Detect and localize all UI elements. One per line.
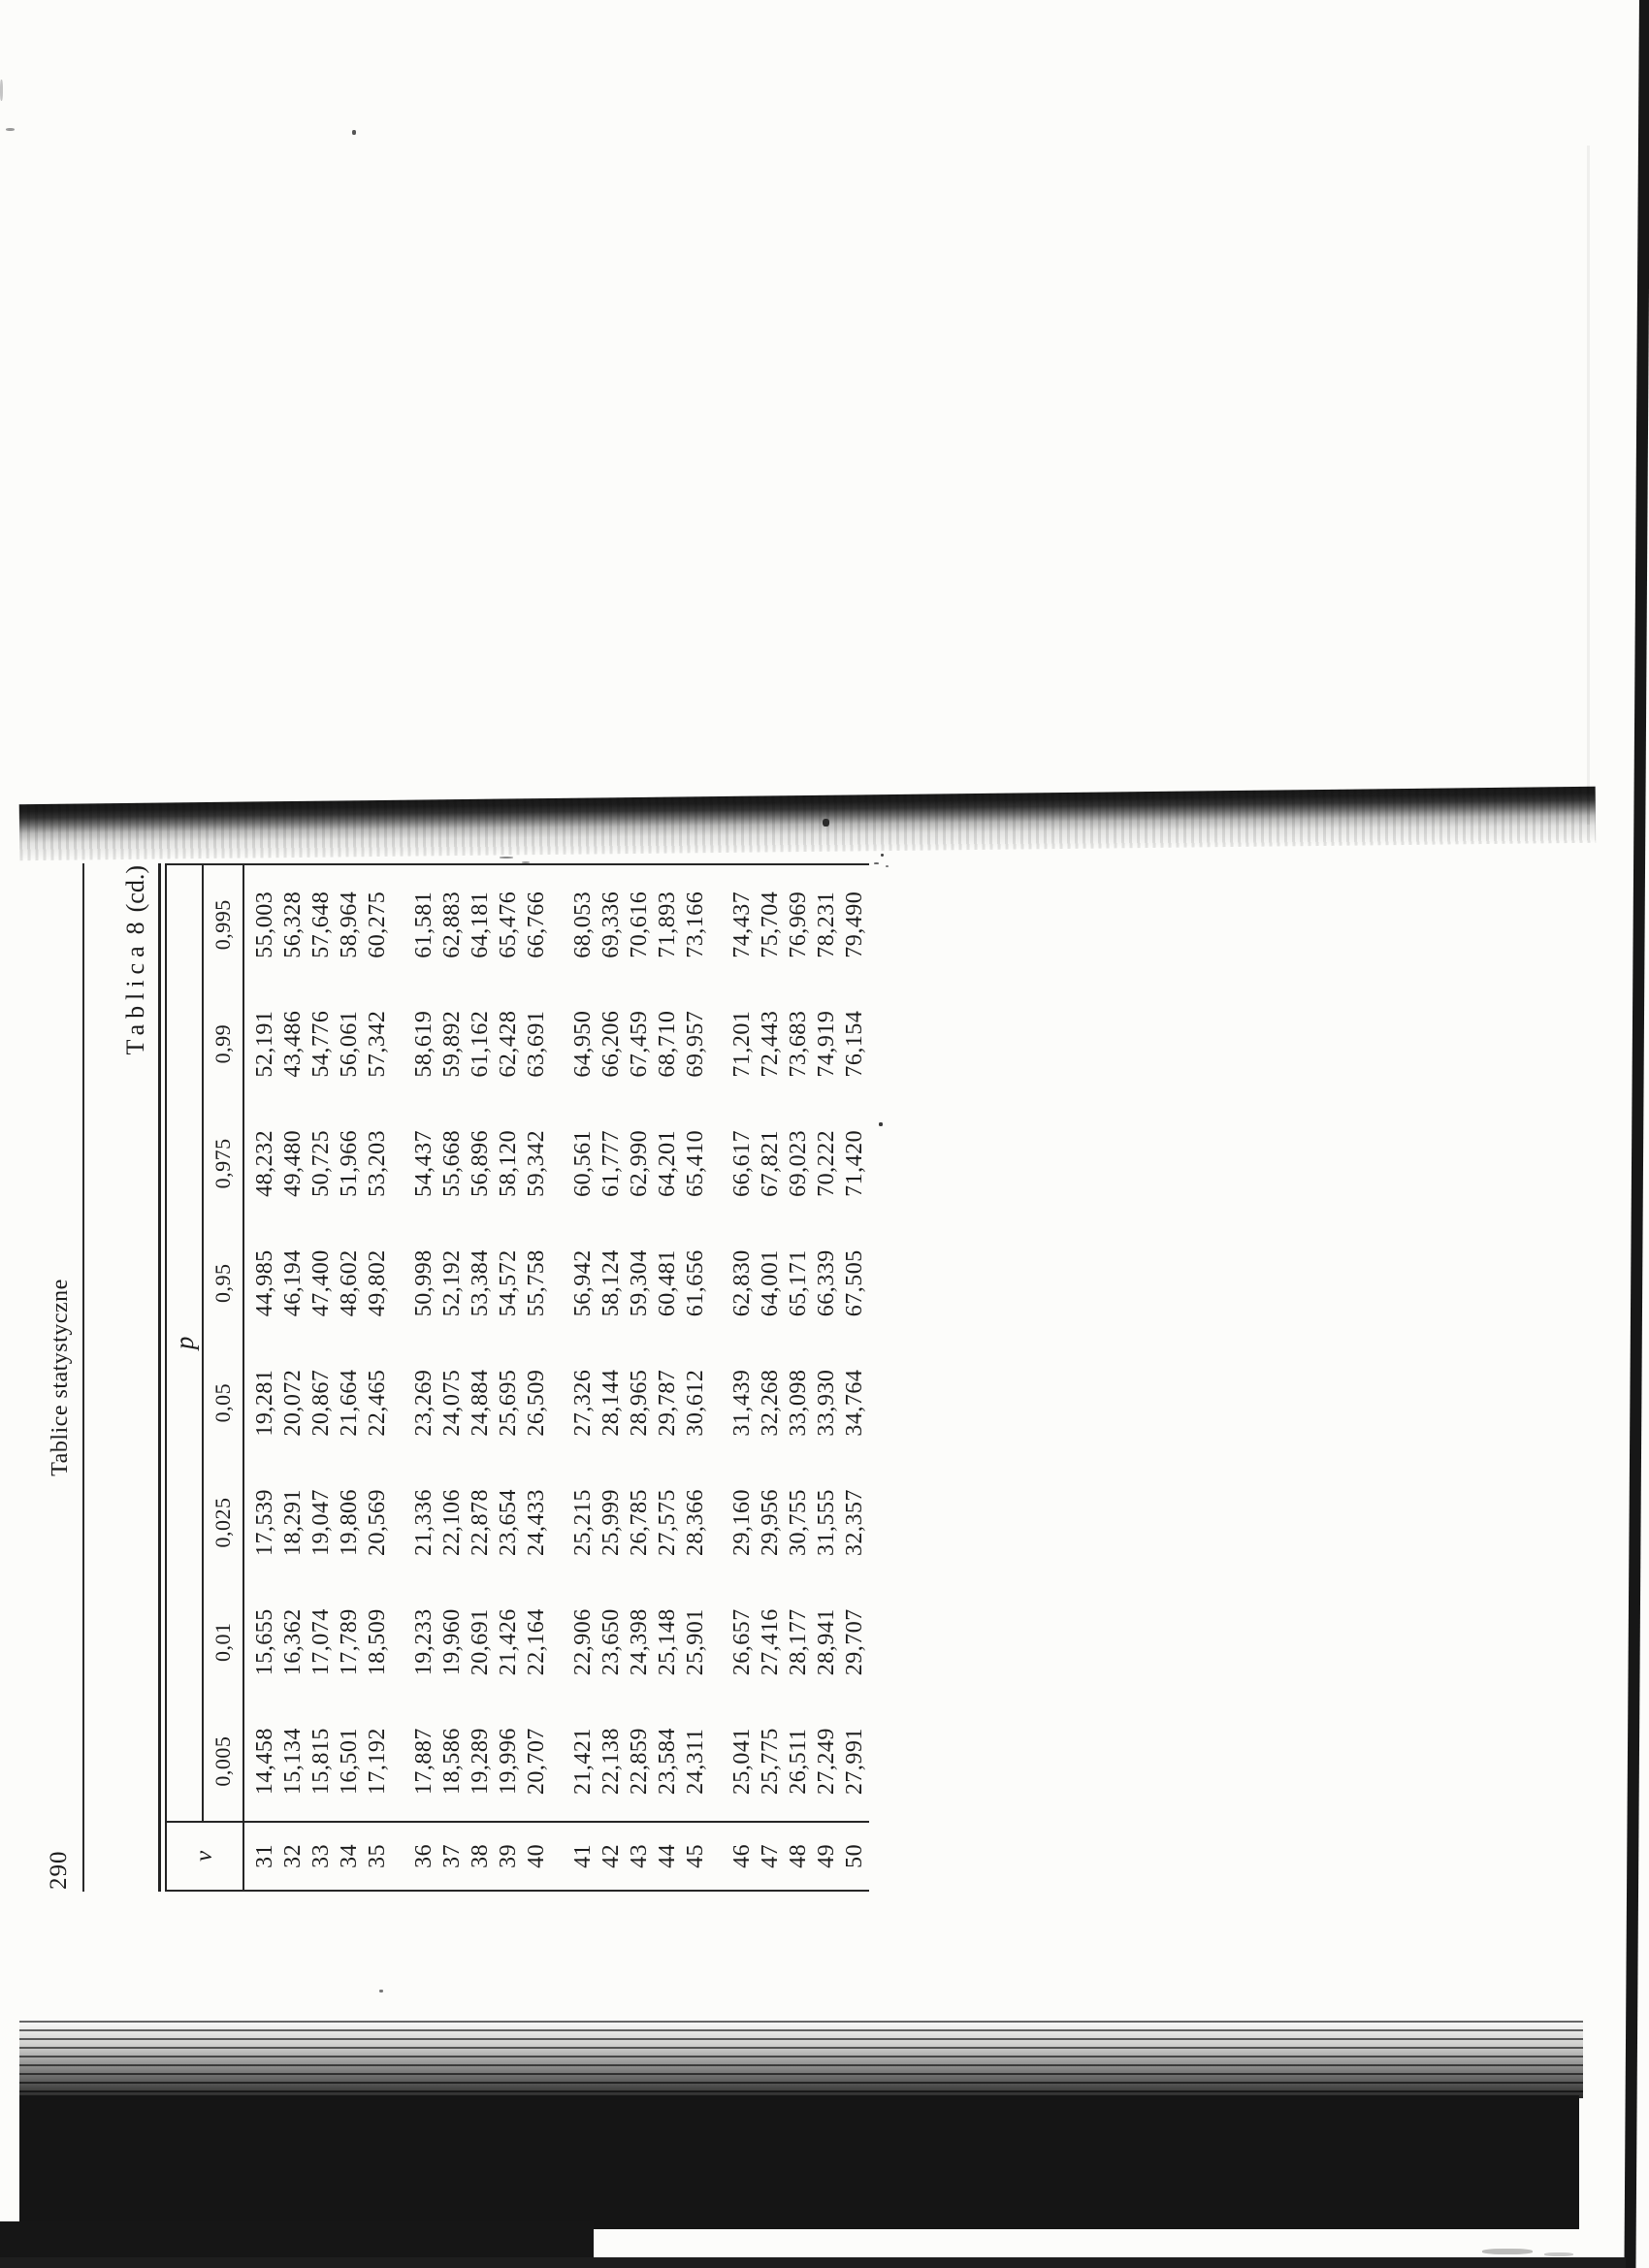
- p-value-header: 0,025: [203, 1463, 243, 1582]
- table-row: 3617,88719,23321,33623,26950,99854,43758…: [392, 864, 438, 1891]
- value-cell: 50,725: [307, 1104, 336, 1223]
- value-cell: 62,428: [495, 984, 523, 1103]
- value-cell: 21,336: [392, 1463, 438, 1582]
- value-cell: 22,906: [551, 1582, 598, 1701]
- value-cell: 25,041: [710, 1701, 757, 1821]
- value-cell: 52,192: [438, 1223, 467, 1343]
- value-cell: 61,581: [392, 864, 438, 984]
- value-cell: 51,966: [336, 1104, 364, 1223]
- table-row: 4826,51128,17730,75533,09865,17169,02373…: [785, 864, 813, 1891]
- scan-speck: [823, 819, 829, 826]
- value-cell: 20,691: [467, 1582, 495, 1701]
- scan-speck: [1482, 2249, 1533, 2254]
- value-cell: 18,291: [279, 1463, 307, 1582]
- scan-bottom-streaks: [19, 2021, 1583, 2098]
- value-cell: 21,664: [336, 1343, 364, 1462]
- value-cell: 29,956: [757, 1463, 785, 1582]
- nu-cell: 44: [654, 1822, 682, 1891]
- value-cell: 17,539: [243, 1463, 279, 1582]
- value-cell: 24,884: [467, 1343, 495, 1462]
- value-cell: 30,755: [785, 1463, 813, 1582]
- value-cell: 54,572: [495, 1223, 523, 1343]
- value-cell: 22,859: [626, 1701, 654, 1821]
- value-cell: 27,416: [757, 1582, 785, 1701]
- value-cell: 30,612: [682, 1343, 710, 1462]
- rotated-content: 290 Tablice statystyczne Tablica8(cd.) ν…: [39, 863, 861, 1892]
- nu-cell: 40: [523, 1822, 551, 1891]
- value-cell: 25,215: [551, 1463, 598, 1582]
- nu-cell: 39: [495, 1822, 523, 1891]
- value-cell: 76,969: [785, 864, 813, 984]
- value-cell: 66,617: [710, 1104, 757, 1223]
- value-cell: 27,991: [841, 1701, 869, 1821]
- value-cell: 64,950: [551, 984, 598, 1103]
- value-cell: 15,655: [243, 1582, 279, 1701]
- value-cell: 65,171: [785, 1223, 813, 1343]
- value-cell: 28,941: [813, 1582, 841, 1701]
- value-cell: 25,999: [598, 1463, 626, 1582]
- value-cell: 76,154: [841, 984, 869, 1103]
- nu-cell: 32: [279, 1822, 307, 1891]
- value-cell: 18,509: [364, 1582, 392, 1701]
- value-cell: 62,883: [438, 864, 467, 984]
- value-cell: 27,575: [654, 1463, 682, 1582]
- p-value-header: 0,005: [203, 1701, 243, 1821]
- value-cell: 56,061: [336, 984, 364, 1103]
- value-cell: 73,166: [682, 864, 710, 984]
- value-cell: 56,896: [467, 1104, 495, 1223]
- value-cell: 64,201: [654, 1104, 682, 1223]
- table-row: 3517,19218,50920,56922,46549,80253,20357…: [364, 864, 392, 1891]
- table-row: 4121,42122,90625,21527,32656,94260,56164…: [551, 864, 598, 1891]
- value-cell: 32,268: [757, 1343, 785, 1462]
- value-cell: 33,930: [813, 1343, 841, 1462]
- value-cell: 25,695: [495, 1343, 523, 1462]
- scan-crease-line: [1587, 146, 1590, 825]
- value-cell: 67,459: [626, 984, 654, 1103]
- value-cell: 64,181: [467, 864, 495, 984]
- value-cell: 21,421: [551, 1701, 598, 1821]
- value-cell: 23,650: [598, 1582, 626, 1701]
- value-cell: 49,802: [364, 1223, 392, 1343]
- table-row: 3919,99621,42623,65425,69554,57258,12062…: [495, 864, 523, 1891]
- value-cell: 22,164: [523, 1582, 551, 1701]
- p-value-header: 0,975: [203, 1104, 243, 1223]
- value-cell: 66,339: [813, 1223, 841, 1343]
- scan-bottom-strip: [0, 2257, 1626, 2268]
- value-cell: 50,998: [392, 1223, 438, 1343]
- value-cell: 58,964: [336, 864, 364, 984]
- value-cell: 49,480: [279, 1104, 307, 1223]
- value-cell: 48,232: [243, 1104, 279, 1223]
- header-p: p: [167, 864, 203, 1822]
- value-cell: 61,777: [598, 1104, 626, 1223]
- value-cell: 24,433: [523, 1463, 551, 1582]
- value-cell: 19,289: [467, 1701, 495, 1821]
- value-cell: 66,766: [523, 864, 551, 984]
- p-value-header: 0,995: [203, 864, 243, 984]
- value-cell: 57,648: [307, 864, 336, 984]
- table-row: 4222,13823,65025,99928,14458,12461,77766…: [598, 864, 626, 1891]
- value-cell: 25,775: [757, 1701, 785, 1821]
- scan-speck: [500, 857, 513, 859]
- value-cell: 16,501: [336, 1701, 364, 1821]
- value-cell: 27,326: [551, 1343, 598, 1462]
- value-cell: 53,384: [467, 1223, 495, 1343]
- value-cell: 29,160: [710, 1463, 757, 1582]
- nu-cell: 43: [626, 1822, 654, 1891]
- value-cell: 54,437: [392, 1104, 438, 1223]
- value-cell: 52,191: [243, 984, 279, 1103]
- value-cell: 65,410: [682, 1104, 710, 1223]
- nu-cell: 48: [785, 1822, 813, 1891]
- value-cell: 48,602: [336, 1223, 364, 1343]
- scan-speck: [379, 1990, 383, 1993]
- value-cell: 69,023: [785, 1104, 813, 1223]
- value-cell: 22,465: [364, 1343, 392, 1462]
- table-row: 3718,58619,96022,10624,07552,19255,66859…: [438, 864, 467, 1891]
- value-cell: 71,893: [654, 864, 682, 984]
- table-top-rule-outer: [158, 863, 161, 1892]
- value-cell: 68,053: [551, 864, 598, 984]
- value-cell: 69,957: [682, 984, 710, 1103]
- value-cell: 59,892: [438, 984, 467, 1103]
- scan-speck: [0, 80, 3, 101]
- scan-binding-shadow-band: [19, 787, 1597, 860]
- value-cell: 17,887: [392, 1701, 438, 1821]
- value-cell: 68,710: [654, 984, 682, 1103]
- p-value-header: 0,05: [203, 1343, 243, 1462]
- value-cell: 31,439: [710, 1343, 757, 1462]
- table-header: ν p 0,0050,010,0250,050,950,9750,990,995: [167, 864, 243, 1891]
- table-row: 4423,58425,14827,57529,78760,48164,20168…: [654, 864, 682, 1891]
- value-cell: 24,311: [682, 1701, 710, 1821]
- value-cell: 32,357: [841, 1463, 869, 1582]
- value-cell: 15,815: [307, 1701, 336, 1821]
- value-cell: 26,511: [785, 1701, 813, 1821]
- table-title-number: 8: [121, 912, 149, 940]
- value-cell: 19,996: [495, 1701, 523, 1821]
- value-cell: 28,177: [785, 1582, 813, 1701]
- table-row: 3315,81517,07419,04720,86747,40050,72554…: [307, 864, 336, 1891]
- value-cell: 56,328: [279, 864, 307, 984]
- scan-speck: [874, 862, 879, 864]
- value-cell: 57,342: [364, 984, 392, 1103]
- value-cell: 67,505: [841, 1223, 869, 1343]
- nu-cell: 46: [710, 1822, 757, 1891]
- value-cell: 23,269: [392, 1343, 438, 1462]
- running-head: Tablice statystyczne: [48, 863, 74, 1892]
- value-cell: 16,362: [279, 1582, 307, 1701]
- table-row: 3416,50117,78919,80621,66448,60251,96656…: [336, 864, 364, 1891]
- value-cell: 46,194: [279, 1223, 307, 1343]
- value-cell: 62,990: [626, 1104, 654, 1223]
- value-cell: 44,985: [243, 1223, 279, 1343]
- table-title: Tablica8(cd.): [121, 863, 156, 1892]
- value-cell: 26,509: [523, 1343, 551, 1462]
- value-cell: 15,134: [279, 1701, 307, 1821]
- scan-speck: [886, 865, 889, 867]
- p-value-header: 0,95: [203, 1223, 243, 1343]
- value-cell: 27,249: [813, 1701, 841, 1821]
- chi-square-table: ν p 0,0050,010,0250,050,950,9750,990,995…: [158, 863, 869, 1892]
- value-cell: 25,148: [654, 1582, 682, 1701]
- value-cell: 62,830: [710, 1223, 757, 1343]
- table-row: 4725,77527,41629,95632,26864,00167,82172…: [757, 864, 785, 1891]
- value-cell: 43,486: [279, 984, 307, 1103]
- value-cell: 70,222: [813, 1104, 841, 1223]
- nu-cell: 38: [467, 1822, 495, 1891]
- value-cell: 19,047: [307, 1463, 336, 1582]
- value-cell: 71,420: [841, 1104, 869, 1223]
- nu-cell: 33: [307, 1822, 336, 1891]
- nu-cell: 37: [438, 1822, 467, 1891]
- value-cell: 70,616: [626, 864, 654, 984]
- table-row: 4524,31125,90128,36630,61261,65665,41069…: [682, 864, 710, 1891]
- table-row: 4625,04126,65729,16031,43962,83066,61771…: [710, 864, 757, 1891]
- value-cell: 19,806: [336, 1463, 364, 1582]
- value-cell: 20,072: [279, 1343, 307, 1462]
- value-cell: 54,776: [307, 984, 336, 1103]
- table-grid: ν p 0,0050,010,0250,050,950,9750,990,995…: [167, 863, 869, 1892]
- value-cell: 63,691: [523, 984, 551, 1103]
- value-cell: 58,619: [392, 984, 438, 1103]
- value-cell: 55,758: [523, 1223, 551, 1343]
- nu-cell: 35: [364, 1822, 392, 1891]
- nu-cell: 41: [551, 1822, 598, 1891]
- value-cell: 66,206: [598, 984, 626, 1103]
- scan-speck: [879, 1122, 883, 1126]
- table-title-word: Tablica: [121, 940, 149, 1054]
- value-cell: 17,789: [336, 1582, 364, 1701]
- value-cell: 59,304: [626, 1223, 654, 1343]
- nu-cell: 31: [243, 1822, 279, 1891]
- value-cell: 74,437: [710, 864, 757, 984]
- p-value-header: 0,01: [203, 1582, 243, 1701]
- value-cell: 25,901: [682, 1582, 710, 1701]
- value-cell: 74,919: [813, 984, 841, 1103]
- value-cell: 33,098: [785, 1343, 813, 1462]
- value-cell: 64,001: [757, 1223, 785, 1343]
- p-value-header: 0,99: [203, 984, 243, 1103]
- value-cell: 69,336: [598, 864, 626, 984]
- value-cell: 53,203: [364, 1104, 392, 1223]
- value-cell: 20,707: [523, 1701, 551, 1821]
- value-cell: 28,965: [626, 1343, 654, 1462]
- value-cell: 55,003: [243, 864, 279, 984]
- value-cell: 34,764: [841, 1343, 869, 1462]
- nu-cell: 45: [682, 1822, 710, 1891]
- value-cell: 22,106: [438, 1463, 467, 1582]
- header-p-values-row: 0,0050,010,0250,050,950,9750,990,995: [203, 864, 243, 1891]
- value-cell: 60,275: [364, 864, 392, 984]
- value-cell: 24,398: [626, 1582, 654, 1701]
- value-cell: 19,233: [392, 1582, 438, 1701]
- value-cell: 31,555: [813, 1463, 841, 1582]
- value-cell: 67,821: [757, 1104, 785, 1223]
- scan-speck: [881, 854, 884, 857]
- table-row: 3114,45815,65517,53919,28144,98548,23252…: [243, 864, 279, 1891]
- value-cell: 23,584: [654, 1701, 682, 1821]
- value-cell: 55,668: [438, 1104, 467, 1223]
- value-cell: 60,481: [654, 1223, 682, 1343]
- value-cell: 19,281: [243, 1343, 279, 1462]
- value-cell: 28,366: [682, 1463, 710, 1582]
- table-row: 4020,70722,16424,43326,50955,75859,34263…: [523, 864, 551, 1891]
- table-row: 3819,28920,69122,87824,88453,38456,89661…: [467, 864, 495, 1891]
- value-cell: 18,586: [438, 1701, 467, 1821]
- value-cell: 29,787: [654, 1343, 682, 1462]
- table-row: 5027,99129,70732,35734,76467,50571,42076…: [841, 864, 869, 1891]
- value-cell: 72,443: [757, 984, 785, 1103]
- value-cell: 79,490: [841, 864, 869, 984]
- scan-speck: [352, 130, 356, 135]
- value-cell: 23,654: [495, 1463, 523, 1582]
- nu-cell: 36: [392, 1822, 438, 1891]
- value-cell: 17,074: [307, 1582, 336, 1701]
- value-cell: 58,124: [598, 1223, 626, 1343]
- nu-cell: 47: [757, 1822, 785, 1891]
- value-cell: 58,120: [495, 1104, 523, 1223]
- scanned-page: 290 Tablice statystyczne Tablica8(cd.) ν…: [0, 0, 1649, 2268]
- value-cell: 22,878: [467, 1463, 495, 1582]
- table-title-suffix: (cd.): [121, 865, 149, 912]
- table-row: 3215,13416,36218,29120,07246,19449,48043…: [279, 864, 307, 1891]
- nu-cell: 50: [841, 1822, 869, 1891]
- value-cell: 61,162: [467, 984, 495, 1103]
- nu-cell: 42: [598, 1822, 626, 1891]
- value-cell: 14,458: [243, 1701, 279, 1821]
- value-cell: 75,704: [757, 864, 785, 984]
- nu-cell: 34: [336, 1822, 364, 1891]
- scan-bottom-black-band: [19, 2095, 1579, 2229]
- scan-speck: [6, 128, 15, 131]
- scan-speck: [1544, 2252, 1573, 2256]
- scan-right-edge-bar: [1624, 0, 1649, 2268]
- value-cell: 61,656: [682, 1223, 710, 1343]
- value-cell: 29,707: [841, 1582, 869, 1701]
- value-cell: 73,683: [785, 984, 813, 1103]
- header-nu: ν: [167, 1822, 243, 1891]
- value-cell: 17,192: [364, 1701, 392, 1821]
- table-row: 4927,24928,94131,55533,93066,33970,22274…: [813, 864, 841, 1891]
- value-cell: 20,569: [364, 1463, 392, 1582]
- value-cell: 24,075: [438, 1343, 467, 1462]
- table-row: 4322,85924,39826,78528,96559,30462,99067…: [626, 864, 654, 1891]
- value-cell: 60,561: [551, 1104, 598, 1223]
- nu-cell: 49: [813, 1822, 841, 1891]
- value-cell: 28,144: [598, 1343, 626, 1462]
- value-cell: 21,426: [495, 1582, 523, 1701]
- value-cell: 71,201: [710, 984, 757, 1103]
- value-cell: 22,138: [598, 1701, 626, 1821]
- running-head-line: 290 Tablice statystyczne: [39, 863, 84, 1892]
- value-cell: 56,942: [551, 1223, 598, 1343]
- value-cell: 59,342: [523, 1104, 551, 1223]
- value-cell: 47,400: [307, 1223, 336, 1343]
- table-body: 3114,45815,65517,53919,28144,98548,23252…: [243, 864, 869, 1891]
- value-cell: 65,476: [495, 864, 523, 984]
- value-cell: 20,867: [307, 1343, 336, 1462]
- value-cell: 26,785: [626, 1463, 654, 1582]
- value-cell: 19,960: [438, 1582, 467, 1701]
- value-cell: 26,657: [710, 1582, 757, 1701]
- value-cell: 78,231: [813, 864, 841, 984]
